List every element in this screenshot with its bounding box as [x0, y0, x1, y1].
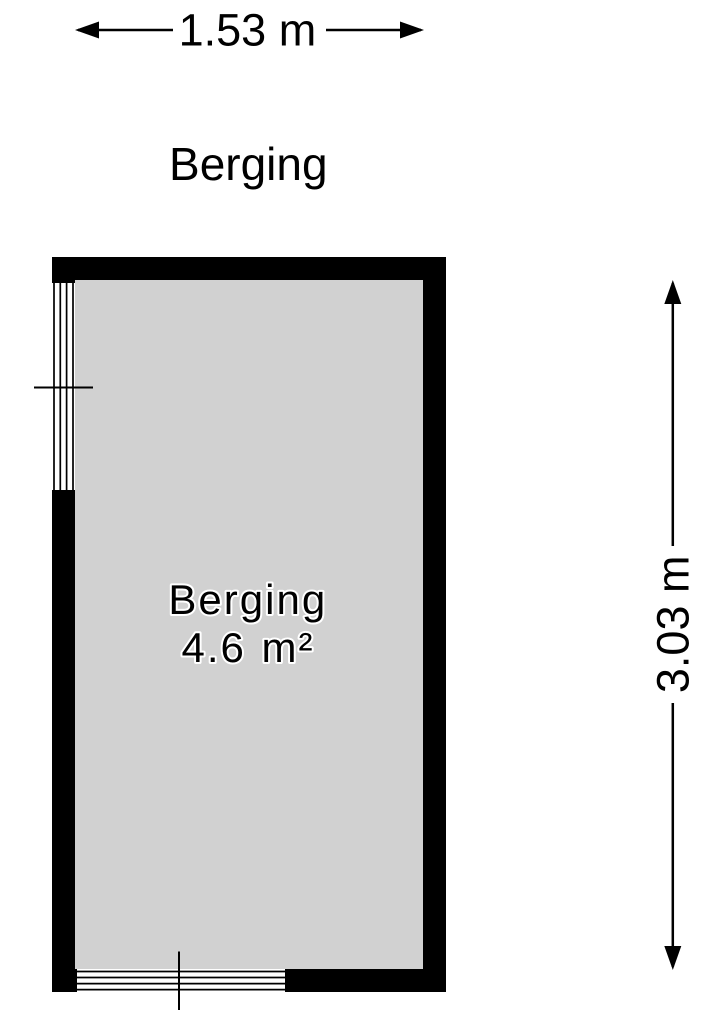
svg-text:Berging: Berging: [168, 576, 327, 623]
svg-text:4.6 m²: 4.6 m²: [181, 624, 314, 671]
svg-text:1.53 m: 1.53 m: [179, 5, 317, 56]
svg-text:3.03 m: 3.03 m: [647, 556, 698, 694]
svg-text:Berging: Berging: [169, 138, 328, 190]
